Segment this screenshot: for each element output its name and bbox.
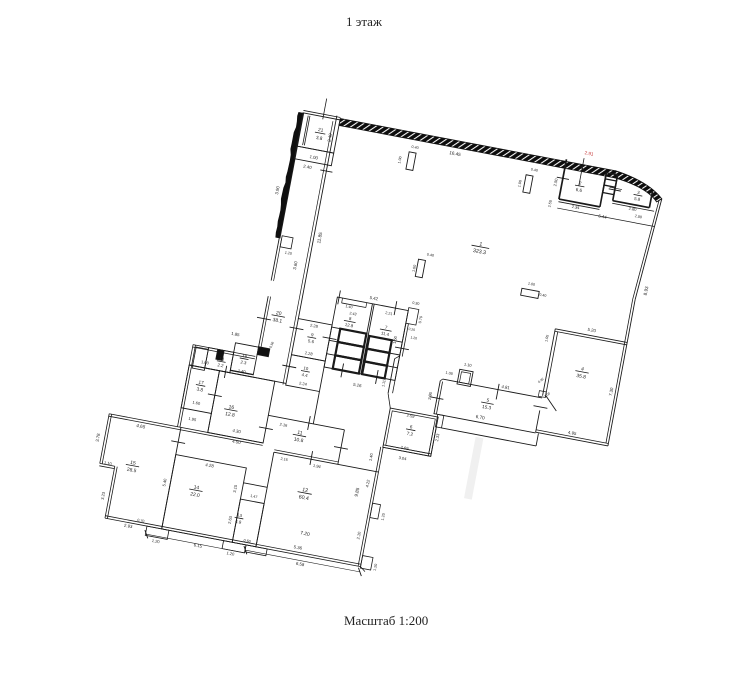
svg-text:1.20: 1.20 bbox=[410, 335, 417, 340]
svg-text:4.30: 4.30 bbox=[232, 428, 242, 435]
svg-text:0.70: 0.70 bbox=[137, 518, 145, 523]
svg-text:6.58: 6.58 bbox=[296, 561, 306, 568]
svg-text:0.70: 0.70 bbox=[418, 316, 423, 324]
svg-text:1.40: 1.40 bbox=[345, 304, 353, 309]
svg-text:11.4: 11.4 bbox=[381, 331, 390, 338]
svg-text:2.40: 2.40 bbox=[303, 164, 313, 171]
svg-text:2.88: 2.88 bbox=[634, 214, 642, 219]
svg-text:2.28: 2.28 bbox=[310, 323, 319, 330]
svg-text:2.59: 2.59 bbox=[406, 413, 415, 420]
svg-text:2.21: 2.21 bbox=[385, 311, 393, 316]
svg-text:2.16: 2.16 bbox=[280, 457, 288, 462]
svg-text:1.20: 1.20 bbox=[151, 538, 160, 545]
svg-text:1.00: 1.00 bbox=[517, 180, 522, 188]
svg-text:7.2: 7.2 bbox=[406, 431, 414, 437]
svg-text:3.78: 3.78 bbox=[95, 432, 102, 442]
svg-text:1.95: 1.95 bbox=[188, 416, 197, 423]
svg-text:0.60: 0.60 bbox=[243, 538, 251, 543]
svg-text:0.40: 0.40 bbox=[411, 145, 419, 150]
svg-text:1.08: 1.08 bbox=[445, 371, 453, 376]
svg-text:1.00: 1.00 bbox=[201, 359, 210, 366]
svg-text:7.30: 7.30 bbox=[608, 387, 615, 397]
svg-text:3.04: 3.04 bbox=[398, 455, 407, 462]
svg-text:1.10: 1.10 bbox=[464, 362, 473, 369]
svg-text:3.8: 3.8 bbox=[316, 135, 324, 141]
svg-text:1.20: 1.20 bbox=[284, 251, 292, 256]
svg-text:0.40: 0.40 bbox=[530, 167, 538, 172]
svg-text:0.40: 0.40 bbox=[426, 253, 434, 258]
svg-text:6.6: 6.6 bbox=[575, 187, 583, 193]
svg-text:3.8: 3.8 bbox=[196, 386, 204, 392]
